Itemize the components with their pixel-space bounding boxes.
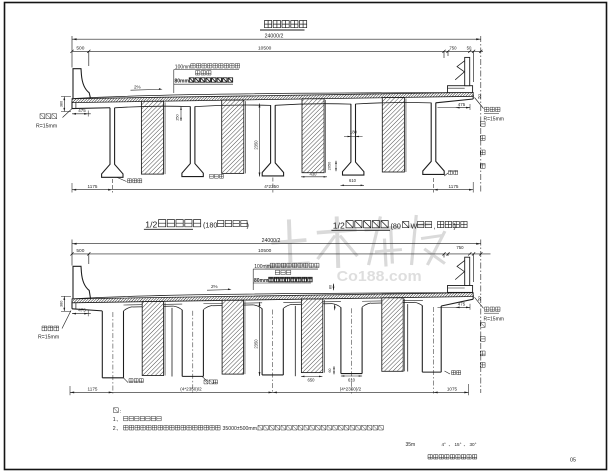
- svg-text:10500: 10500: [258, 248, 272, 254]
- svg-text::: :: [120, 409, 122, 415]
- svg-text:15°: 15°: [455, 442, 462, 447]
- svg-text:、: 、: [449, 442, 454, 447]
- svg-text:750: 750: [449, 46, 457, 51]
- svg-text:250: 250: [175, 114, 179, 120]
- svg-text:1175: 1175: [449, 184, 459, 189]
- svg-text:430: 430: [310, 171, 318, 176]
- svg-text:(4*2350)/2: (4*2350)/2: [340, 387, 362, 392]
- svg-text:180: 180: [350, 129, 358, 134]
- svg-text:2%: 2%: [134, 85, 141, 90]
- svg-text:、: 、: [116, 417, 121, 423]
- svg-text:380: 380: [60, 101, 64, 107]
- svg-text:380: 380: [60, 301, 64, 307]
- svg-text:500: 500: [76, 248, 84, 254]
- svg-text:2350: 2350: [253, 140, 258, 150]
- svg-text:、: 、: [464, 442, 469, 447]
- svg-text:1075: 1075: [447, 387, 458, 392]
- svg-text:500: 500: [76, 46, 84, 52]
- svg-text:35000±500mm,: 35000±500mm,: [223, 426, 259, 432]
- svg-text:Co188.com: Co188.com: [337, 269, 422, 285]
- svg-text:80: 80: [328, 285, 332, 289]
- svg-text:24000/2: 24000/2: [262, 238, 281, 244]
- svg-text:50: 50: [467, 46, 472, 51]
- svg-text:): ): [247, 220, 249, 229]
- svg-text:24000/2: 24000/2: [265, 34, 284, 40]
- svg-text:1/2: 1/2: [333, 220, 345, 230]
- svg-text:1175: 1175: [88, 184, 98, 189]
- svg-text:1175: 1175: [88, 387, 98, 392]
- svg-text:35m: 35m: [406, 442, 416, 448]
- svg-text:475: 475: [78, 108, 86, 113]
- svg-text:R=15mm: R=15mm: [484, 117, 504, 123]
- svg-text:4°: 4°: [442, 442, 447, 447]
- svg-text:30°: 30°: [470, 442, 477, 447]
- svg-text:80mm: 80mm: [175, 79, 190, 85]
- svg-text:,: ,: [434, 221, 436, 230]
- svg-text:2%: 2%: [211, 284, 218, 289]
- svg-text:50: 50: [476, 94, 481, 99]
- svg-text:650: 650: [308, 377, 316, 382]
- svg-text:10500: 10500: [258, 46, 272, 52]
- svg-text:W: W: [411, 221, 418, 230]
- svg-text:R=15mm: R=15mm: [36, 123, 57, 129]
- svg-text:R=15mm: R=15mm: [484, 316, 504, 322]
- svg-text:4*2350: 4*2350: [264, 184, 279, 189]
- svg-text:610: 610: [349, 178, 357, 183]
- svg-text:(80: (80: [391, 221, 401, 230]
- svg-text:80mm: 80mm: [254, 278, 269, 284]
- svg-text:1/2: 1/2: [145, 219, 157, 229]
- svg-text:(4*2350)/2: (4*2350)/2: [180, 387, 202, 392]
- svg-text:、: 、: [116, 426, 121, 432]
- svg-text:750: 750: [456, 245, 464, 250]
- svg-text:): ): [454, 221, 456, 230]
- svg-text:2050: 2050: [328, 162, 332, 170]
- svg-text:475: 475: [458, 102, 466, 107]
- svg-text:475: 475: [458, 302, 466, 307]
- svg-text:60: 60: [328, 369, 332, 373]
- svg-text:2350: 2350: [253, 339, 258, 349]
- svg-text:R=15mm: R=15mm: [38, 335, 59, 341]
- svg-text:(180: (180: [203, 220, 217, 229]
- svg-text:05: 05: [570, 458, 576, 464]
- svg-text:610: 610: [348, 377, 356, 382]
- svg-text:475: 475: [78, 308, 86, 313]
- svg-text:50: 50: [476, 296, 481, 301]
